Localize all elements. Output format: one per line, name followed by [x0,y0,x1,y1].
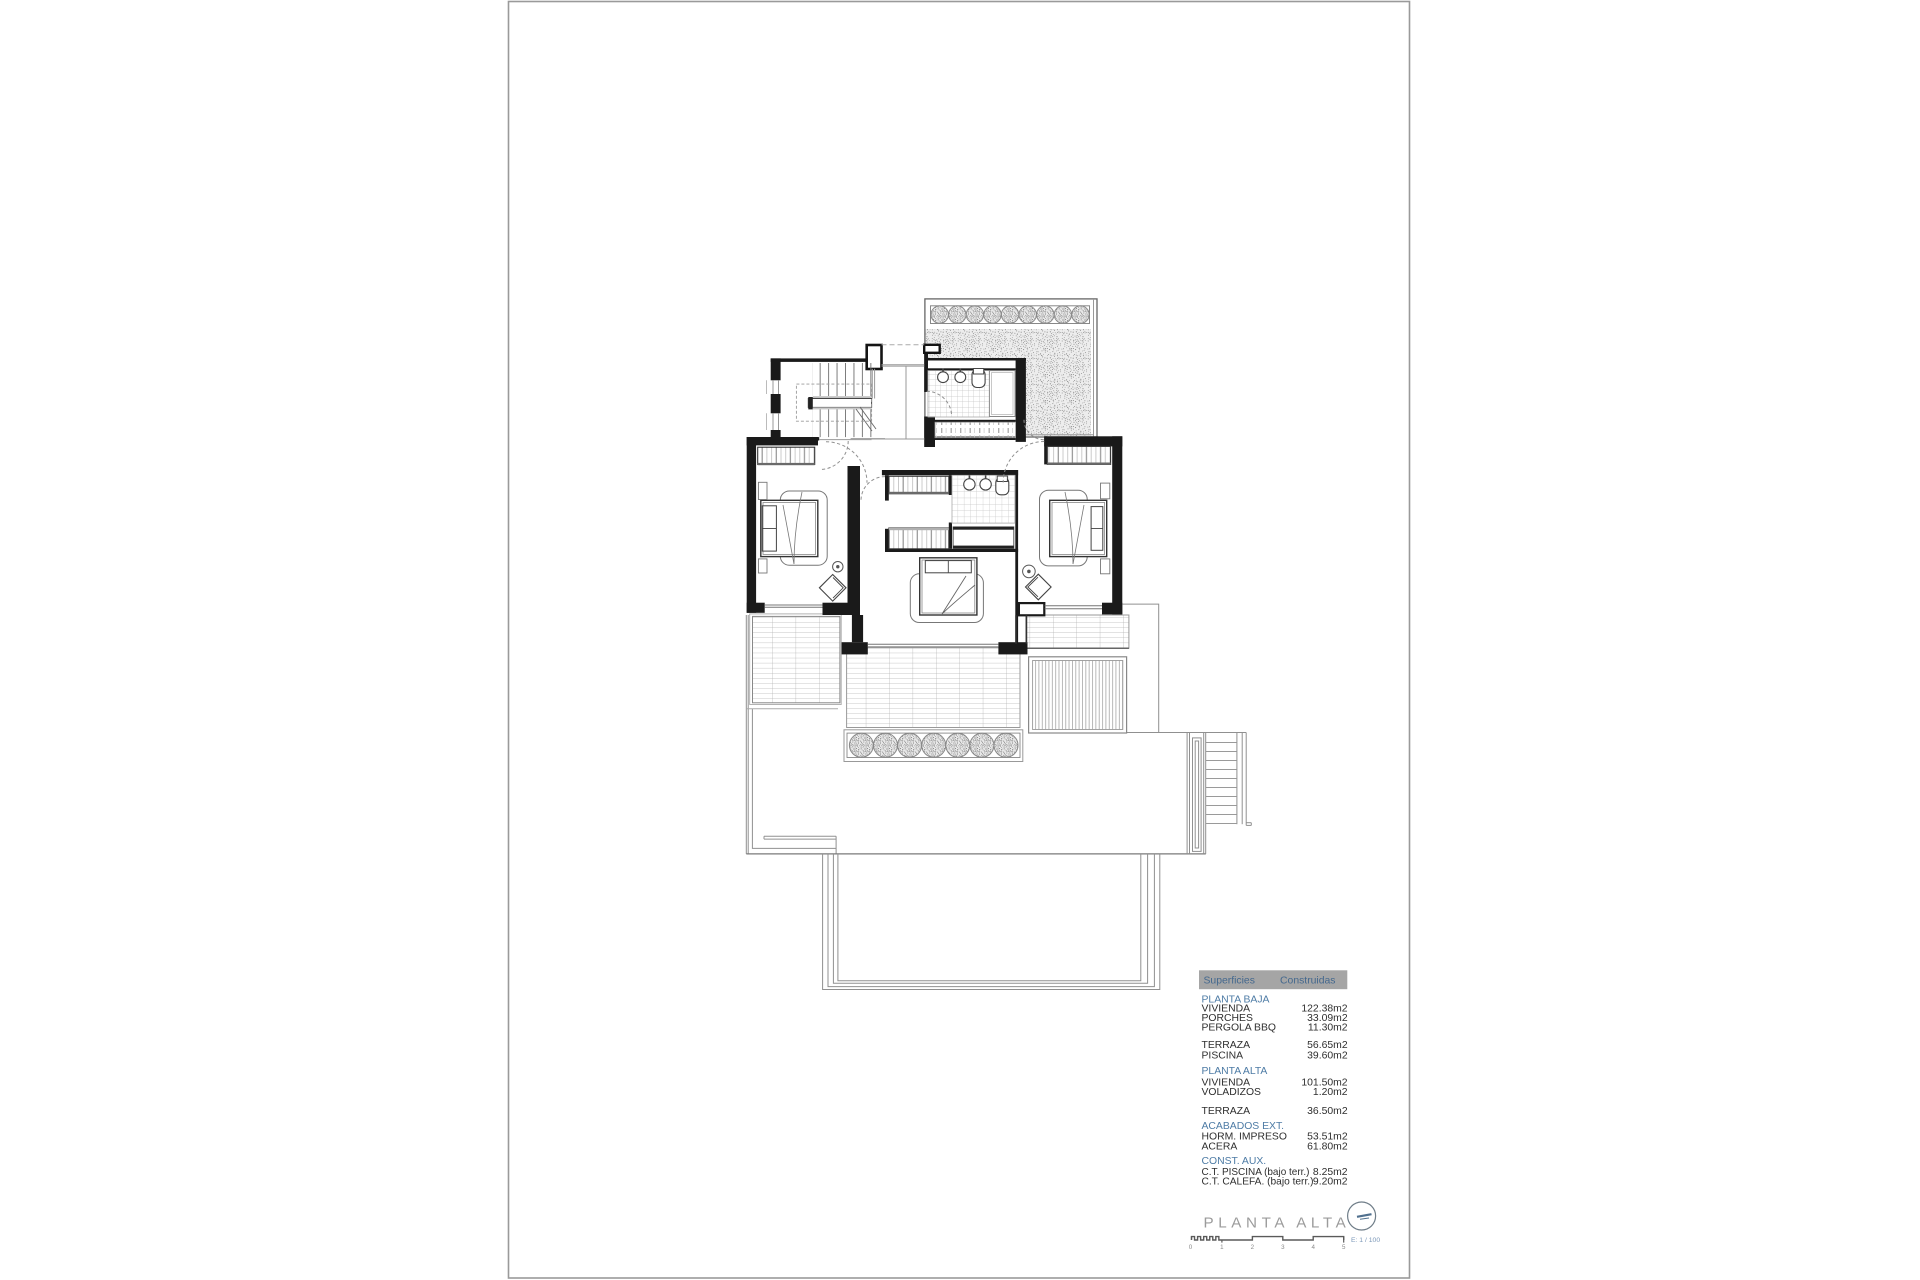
svg-text:0: 0 [1189,1244,1193,1251]
svg-text:4: 4 [1311,1244,1315,1251]
svg-text:ACERA: ACERA [1202,1141,1238,1152]
svg-text:C.T. CALEFA. (bajo terr.): C.T. CALEFA. (bajo terr.) [1202,1176,1314,1187]
svg-text:5: 5 [1342,1244,1346,1251]
svg-text:TERRAZA: TERRAZA [1202,1040,1251,1051]
svg-text:39.60m2: 39.60m2 [1307,1051,1348,1062]
svg-text:E: 1 / 100: E: 1 / 100 [1351,1237,1380,1244]
svg-text:CONST. AUX.: CONST. AUX. [1202,1156,1267,1167]
svg-text:36.50m2: 36.50m2 [1307,1106,1348,1117]
svg-text:11.30m2: 11.30m2 [1308,1022,1348,1033]
svg-text:1: 1 [1220,1244,1224,1251]
svg-text:3: 3 [1281,1244,1285,1251]
svg-text:TERRAZA: TERRAZA [1202,1106,1251,1117]
svg-text:VOLADIZOS: VOLADIZOS [1202,1087,1262,1098]
svg-text:Construidas: Construidas [1280,976,1335,987]
svg-text:2: 2 [1251,1244,1255,1251]
svg-text:ACABADOS EXT.: ACABADOS EXT. [1202,1121,1285,1132]
svg-text:9.20m2: 9.20m2 [1313,1176,1348,1187]
svg-text:PERGOLA BBQ: PERGOLA BBQ [1202,1022,1277,1033]
svg-text:PLANTA ALTA: PLANTA ALTA [1204,1215,1351,1232]
svg-text:PISCINA: PISCINA [1202,1051,1244,1062]
svg-text:PLANTA ALTA: PLANTA ALTA [1202,1066,1268,1077]
svg-text:Superficies: Superficies [1204,976,1255,987]
svg-text:61.80m2: 61.80m2 [1307,1141,1348,1152]
svg-text:1.20m2: 1.20m2 [1313,1087,1348,1098]
svg-text:56.65m2: 56.65m2 [1307,1040,1348,1051]
